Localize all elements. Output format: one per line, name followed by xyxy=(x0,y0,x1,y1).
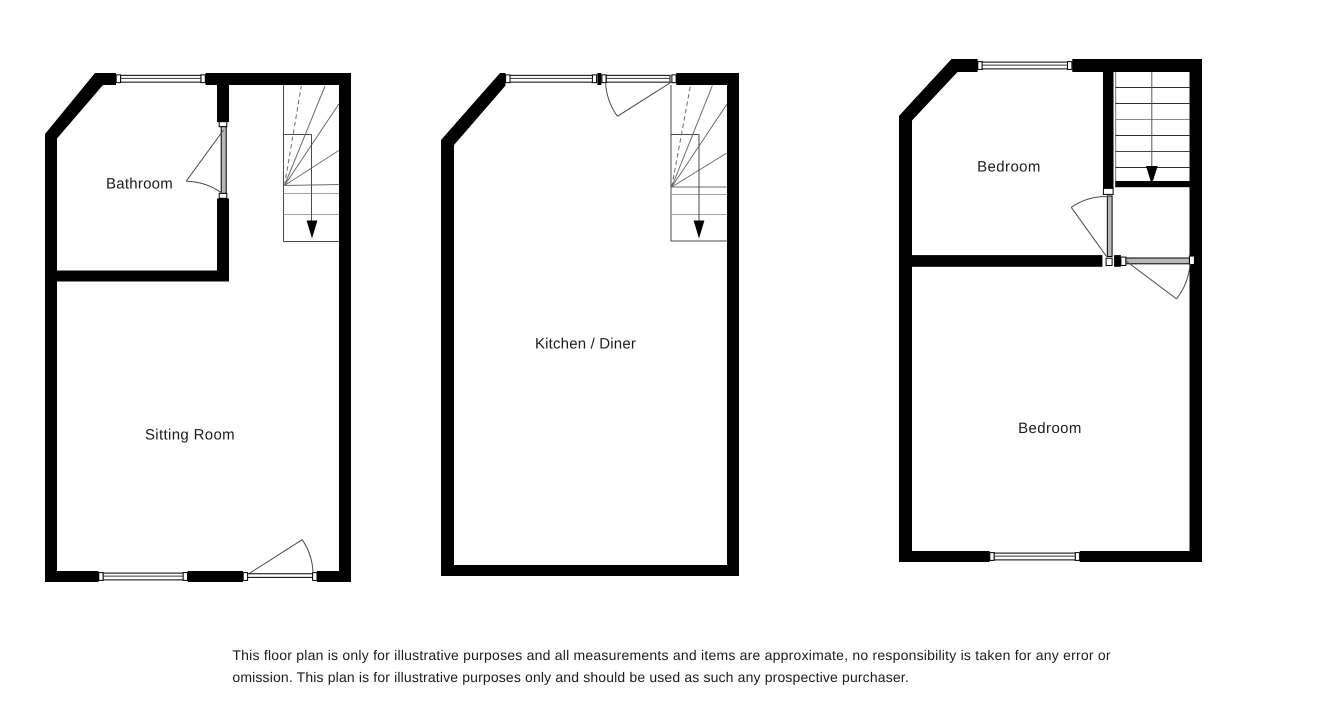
svg-text:Bathroom: Bathroom xyxy=(106,176,173,193)
svg-text:Bedroom: Bedroom xyxy=(977,159,1041,176)
svg-text:omission. This plan is for ill: omission. This plan is for illustrative … xyxy=(232,669,908,685)
svg-text:Kitchen / Diner: Kitchen / Diner xyxy=(535,336,636,353)
svg-text:Sitting Room: Sitting Room xyxy=(145,427,235,444)
svg-text:This floor plan is only for il: This floor plan is only for illustrative… xyxy=(232,647,1111,663)
svg-text:Bedroom: Bedroom xyxy=(1018,420,1082,437)
